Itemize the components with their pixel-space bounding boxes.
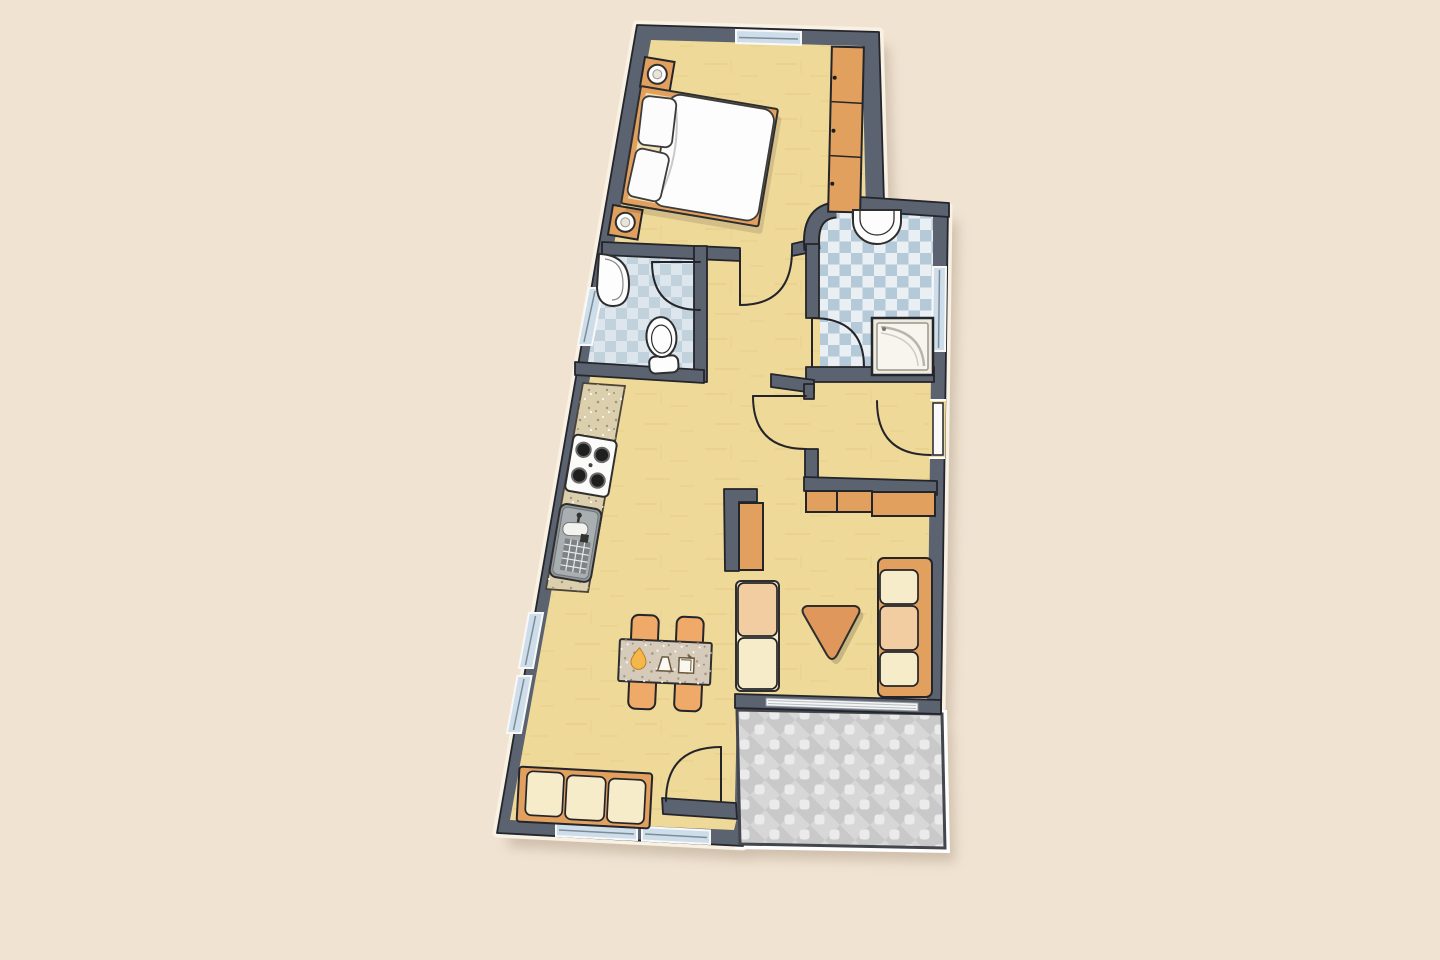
bedroom-window: [736, 30, 801, 45]
cushion: [880, 606, 918, 650]
cushion: [738, 638, 777, 689]
floor-plan-svg: [0, 0, 1440, 960]
cushion: [607, 778, 646, 824]
shower: [872, 318, 933, 375]
sofa-bottom: [517, 767, 653, 829]
floor-plan-canvas: [0, 0, 1440, 960]
sideboard: [806, 491, 935, 516]
tall-cabinet: [739, 503, 763, 570]
wall-bathroom-left: [806, 244, 819, 318]
sideboard-section: [837, 491, 872, 512]
cushion: [525, 771, 564, 817]
toilet: [645, 316, 679, 374]
cushion: [738, 583, 777, 636]
living-window-2: [642, 827, 710, 844]
stove: [564, 434, 617, 498]
entrance-door-leaf: [933, 403, 943, 455]
wall-vestibule-stub: [805, 449, 818, 478]
sofa-two-seat: [736, 581, 779, 691]
sink-basin: [563, 522, 588, 536]
double-bed: [620, 86, 783, 234]
cushion: [565, 775, 606, 821]
sideboard-section: [806, 491, 837, 512]
sideboard-section: [872, 492, 935, 516]
entrance-door: [929, 400, 946, 458]
sofa-three-seat: [878, 558, 932, 697]
cushion: [880, 652, 918, 686]
wall-wc-hallway: [694, 246, 707, 382]
terrace: [737, 710, 945, 848]
cushion: [880, 570, 918, 604]
wardrobe: [828, 47, 864, 213]
pillow: [638, 95, 677, 148]
